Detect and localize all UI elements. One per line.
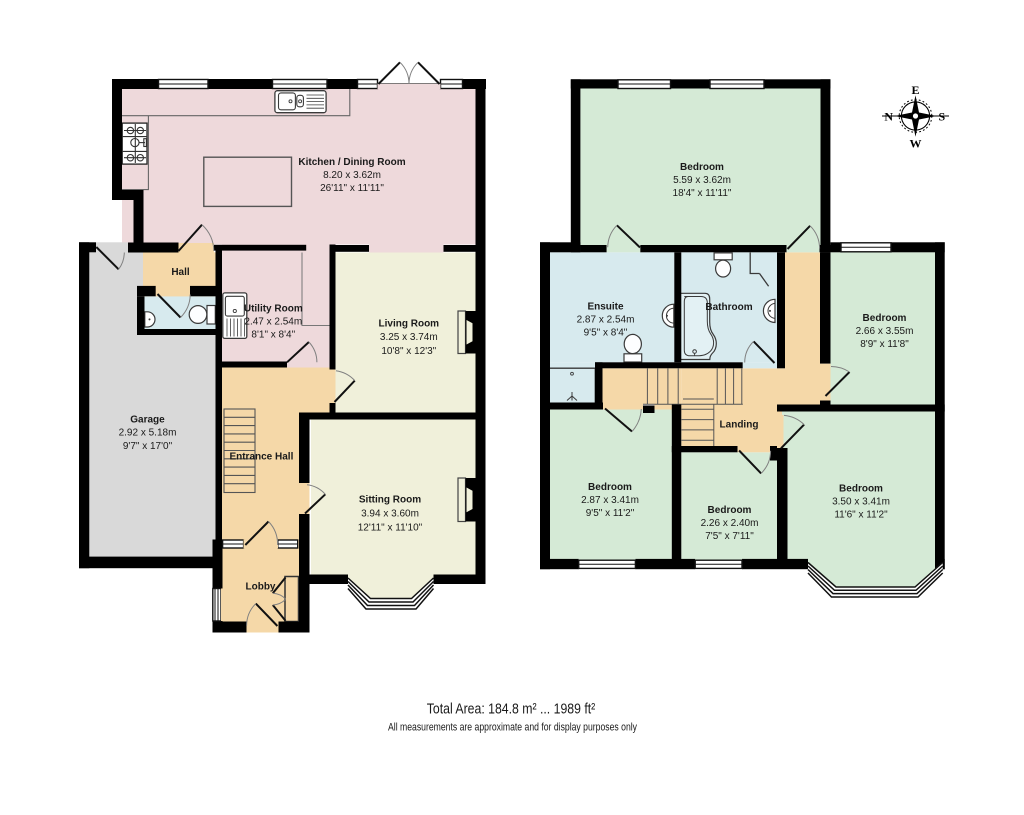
svg-text:Sitting Room: Sitting Room (359, 495, 421, 506)
svg-text:8.20 x 3.62m: 8.20 x 3.62m (323, 170, 381, 181)
svg-text:Garage: Garage (130, 415, 165, 426)
svg-text:Landing: Landing (720, 420, 759, 431)
svg-text:Total Area: 184.8 m² ... 1989: Total Area: 184.8 m² ... 1989 ft² (427, 701, 596, 718)
svg-text:7'5" x 7'11": 7'5" x 7'11" (705, 531, 754, 542)
svg-text:9'5" x 11'2": 9'5" x 11'2" (586, 508, 635, 519)
svg-text:Entrance Hall: Entrance Hall (229, 452, 293, 463)
svg-text:Bedroom: Bedroom (839, 484, 883, 495)
svg-text:Bedroom: Bedroom (680, 162, 724, 173)
svg-text:Lobby: Lobby (246, 582, 276, 593)
svg-text:9'7" x 17'0": 9'7" x 17'0" (123, 441, 173, 452)
svg-text:5.59 x 3.62m: 5.59 x 3.62m (673, 175, 731, 186)
svg-text:12'11" x 11'10": 12'11" x 11'10" (358, 523, 423, 534)
svg-text:3.25 x 3.74m: 3.25 x 3.74m (380, 332, 438, 343)
svg-text:2.87 x 3.41m: 2.87 x 3.41m (581, 495, 639, 506)
svg-text:26'11" x 11'11": 26'11" x 11'11" (320, 183, 384, 194)
svg-text:10'8" x 12'3": 10'8" x 12'3" (381, 346, 436, 357)
svg-text:Bedroom: Bedroom (863, 313, 907, 324)
svg-text:11'6" x 11'2": 11'6" x 11'2" (834, 510, 888, 521)
svg-text:8'9" x 11'8": 8'9" x 11'8" (860, 339, 909, 350)
svg-text:Living Room: Living Room (379, 319, 440, 330)
svg-text:W: W (910, 137, 922, 151)
svg-text:2.47 x 2.54m: 2.47 x 2.54m (244, 317, 302, 328)
svg-text:3.94 x 3.60m: 3.94 x 3.60m (361, 509, 419, 520)
svg-text:Bedroom: Bedroom (588, 482, 632, 493)
svg-text:9'5" x 8'4": 9'5" x 8'4" (584, 328, 628, 339)
svg-text:Kitchen / Dining Room: Kitchen / Dining Room (298, 157, 405, 168)
svg-text:8'1" x 8'4": 8'1" x 8'4" (251, 330, 295, 341)
svg-text:All measurements are approxima: All measurements are approximate and for… (388, 722, 637, 734)
svg-text:E: E (911, 83, 919, 97)
svg-text:Bedroom: Bedroom (708, 505, 752, 516)
svg-text:2.87 x 2.54m: 2.87 x 2.54m (577, 315, 635, 326)
svg-text:2.26 x 2.40m: 2.26 x 2.40m (701, 518, 759, 529)
svg-text:2.92 x 5.18m: 2.92 x 5.18m (119, 428, 177, 439)
svg-text:Hall: Hall (171, 267, 190, 278)
svg-text:S: S (939, 109, 946, 123)
svg-text:Utility Room: Utility Room (244, 304, 303, 315)
svg-text:2.66 x 3.55m: 2.66 x 3.55m (856, 326, 914, 337)
svg-text:Bathroom: Bathroom (705, 302, 752, 313)
svg-text:18'4" x 11'11": 18'4" x 11'11" (673, 188, 732, 199)
svg-text:Ensuite: Ensuite (587, 302, 624, 313)
svg-text:N: N (884, 109, 893, 123)
svg-text:3.50 x 3.41m: 3.50 x 3.41m (832, 497, 890, 508)
